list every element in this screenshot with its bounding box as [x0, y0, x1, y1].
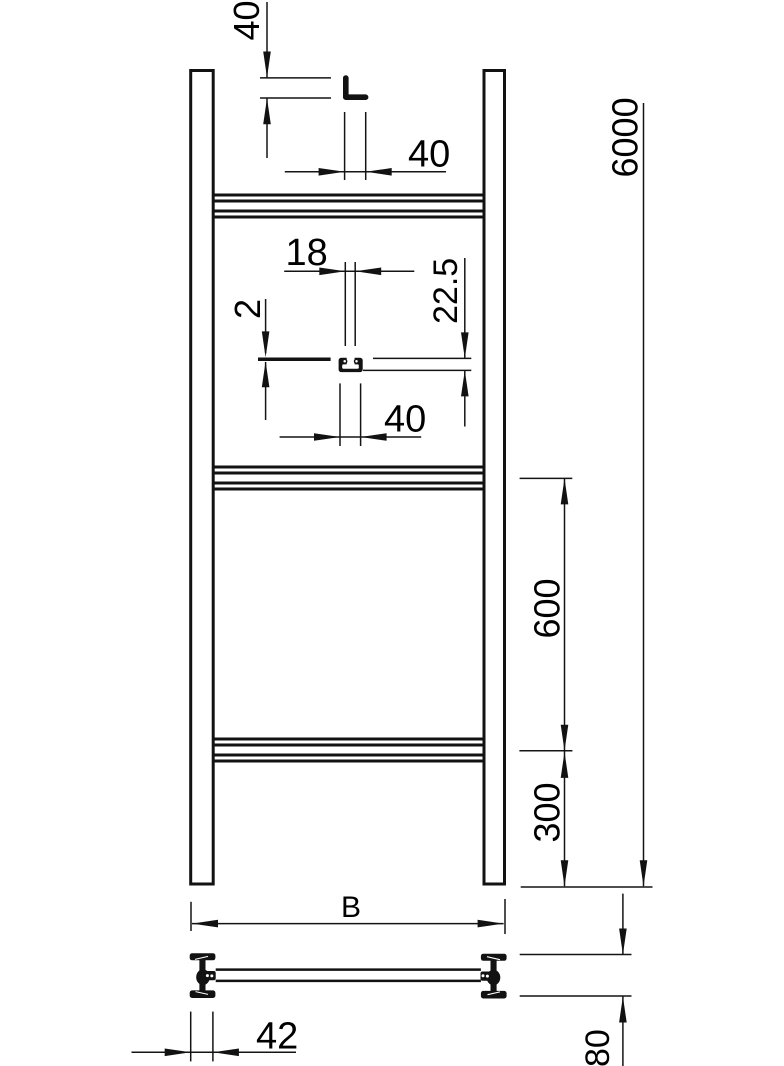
svg-text:22.5: 22.5	[427, 258, 465, 324]
svg-text:600: 600	[527, 578, 568, 638]
svg-text:2: 2	[227, 299, 268, 319]
svg-text:42: 42	[256, 1016, 298, 1058]
svg-text:40: 40	[408, 134, 450, 176]
svg-text:40: 40	[384, 399, 426, 441]
svg-text:40: 40	[226, 0, 267, 40]
svg-text:18: 18	[286, 232, 328, 274]
svg-text:80: 80	[579, 1029, 617, 1066]
svg-text:300: 300	[527, 782, 568, 842]
svg-text:6000: 6000	[605, 97, 646, 177]
svg-text:B: B	[341, 891, 361, 924]
